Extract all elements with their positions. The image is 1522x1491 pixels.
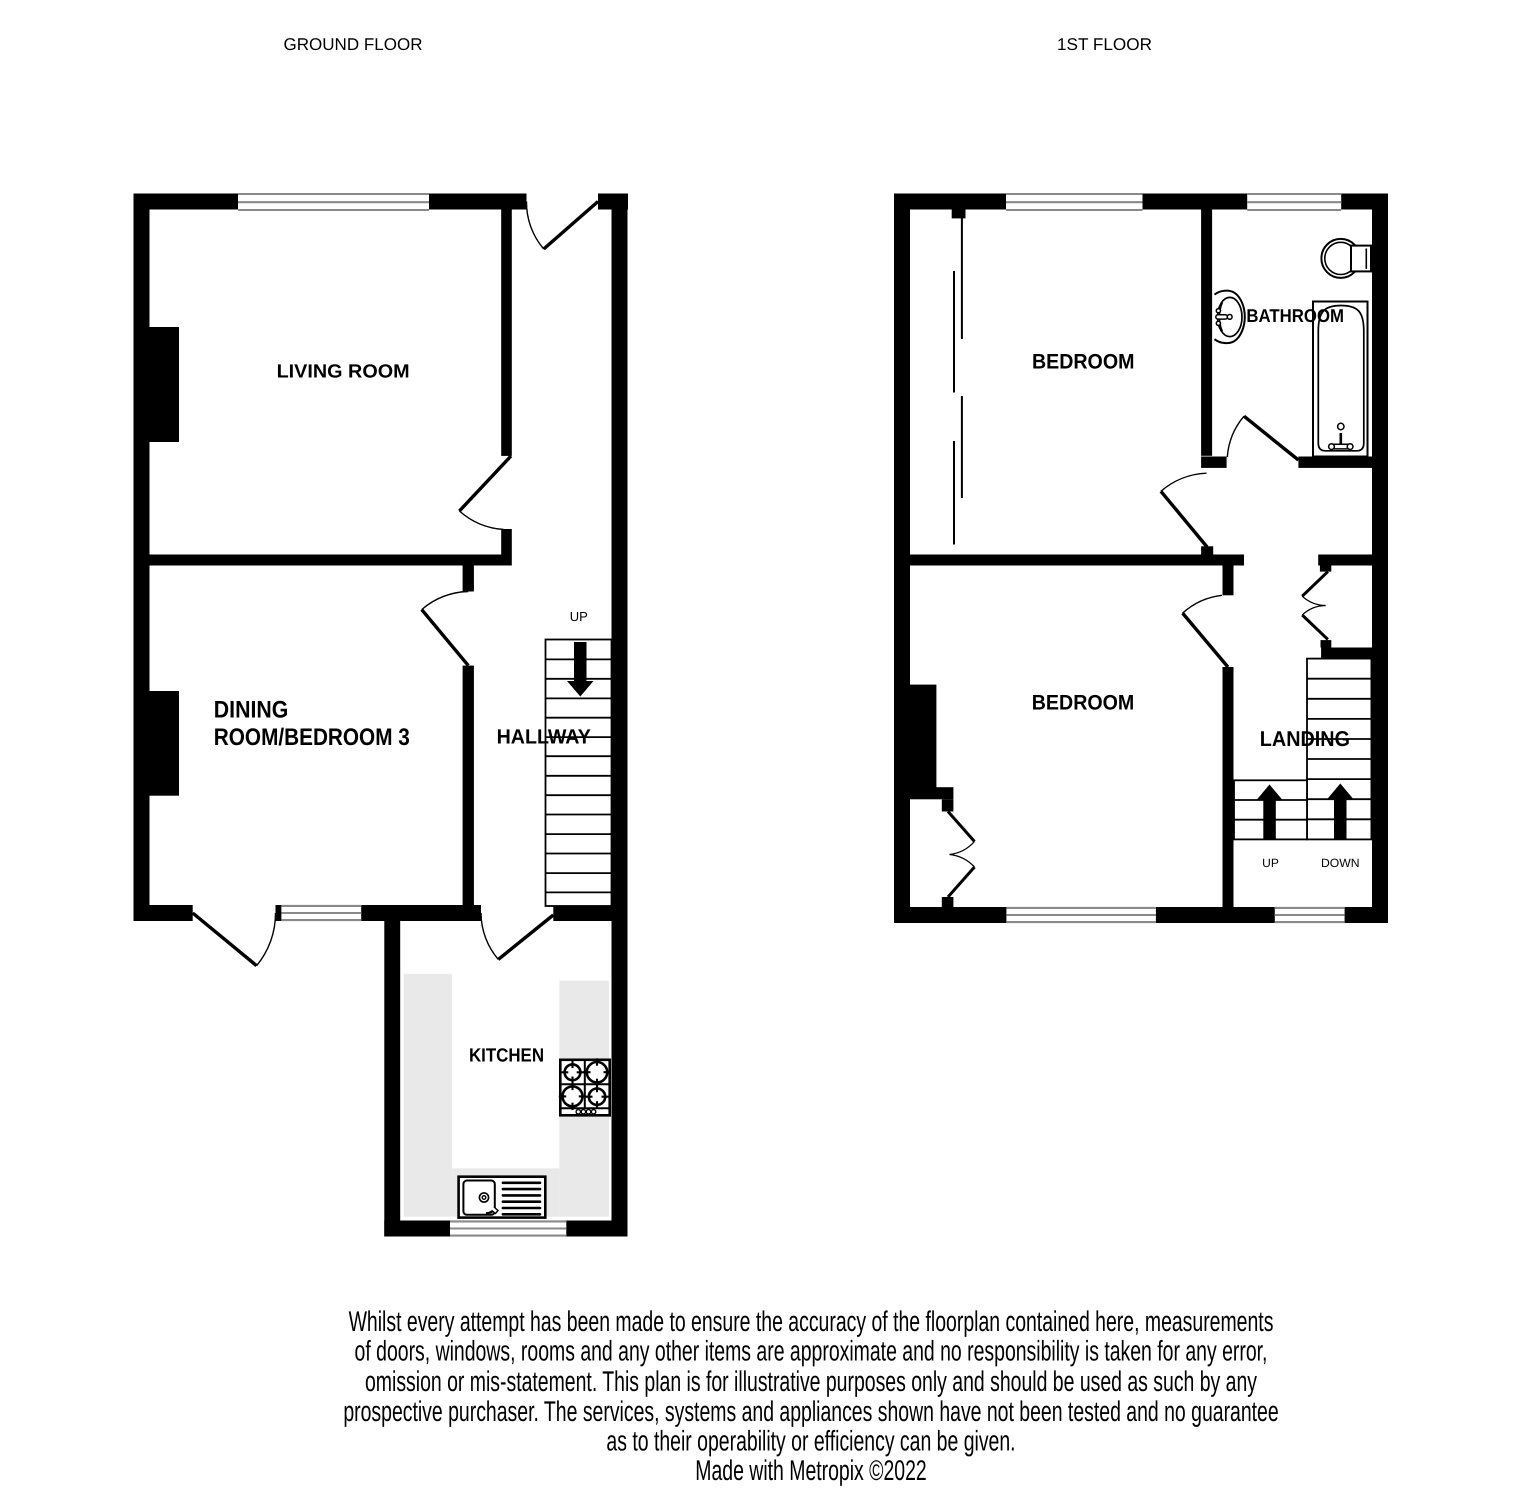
svg-text:BEDROOM: BEDROOM bbox=[1032, 692, 1135, 715]
svg-text:HALLWAY: HALLWAY bbox=[497, 726, 592, 749]
svg-text:GROUND FLOOR: GROUND FLOOR bbox=[284, 35, 423, 54]
svg-text:KITCHEN: KITCHEN bbox=[469, 1046, 544, 1067]
svg-text:BEDROOM: BEDROOM bbox=[1032, 351, 1135, 374]
svg-text:prospective purchaser. The ser: prospective purchaser. The services, sys… bbox=[343, 1396, 1278, 1428]
svg-text:1ST FLOOR: 1ST FLOOR bbox=[1057, 35, 1152, 54]
svg-text:LANDING: LANDING bbox=[1260, 727, 1350, 751]
svg-text:LIVING ROOM: LIVING ROOM bbox=[277, 362, 410, 383]
svg-text:of doors, windows, rooms and a: of doors, windows, rooms and any other i… bbox=[355, 1336, 1268, 1368]
svg-text:Whilst every attempt has been: Whilst every attempt has been made to en… bbox=[349, 1306, 1274, 1338]
svg-text:ROOM/BEDROOM 3: ROOM/BEDROOM 3 bbox=[214, 724, 410, 751]
svg-text:UP: UP bbox=[1262, 856, 1279, 870]
svg-text:UP: UP bbox=[570, 609, 588, 624]
svg-text:as to their operability or eff: as to their operability or efficiency ca… bbox=[606, 1425, 1015, 1457]
svg-text:Made with Metropix ©2022: Made with Metropix ©2022 bbox=[695, 1455, 926, 1487]
svg-text:omission or mis-statement. Thi: omission or mis-statement. This plan is … bbox=[365, 1366, 1258, 1398]
svg-text:BATHROOM: BATHROOM bbox=[1246, 305, 1344, 326]
svg-text:DINING: DINING bbox=[214, 697, 288, 724]
svg-text:DOWN: DOWN bbox=[1321, 856, 1360, 870]
